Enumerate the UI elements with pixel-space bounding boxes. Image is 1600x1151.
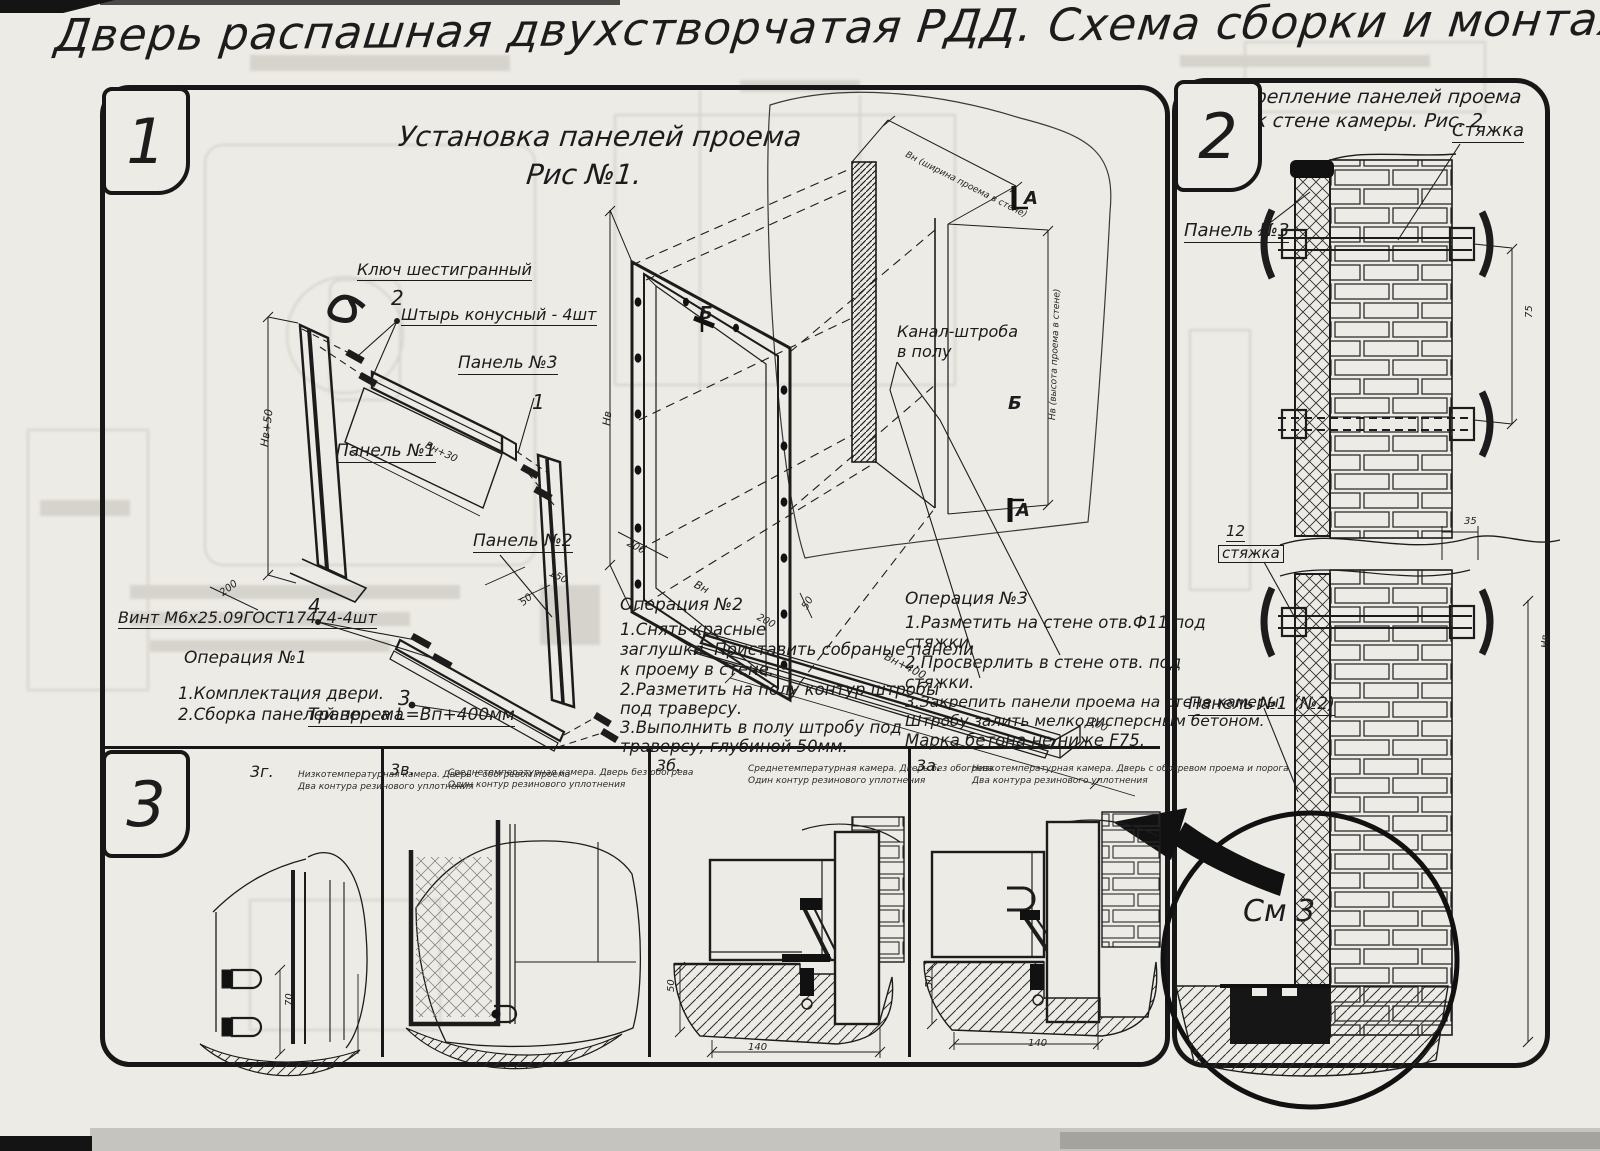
cell-divider-2	[648, 749, 651, 1057]
cell-divider-3	[908, 749, 911, 1057]
cell-3a-label: 3а.	[916, 758, 941, 775]
scan-smudge-bottom-right	[1060, 1132, 1600, 1149]
scan-mark-bottom-left	[0, 1136, 92, 1151]
cell-3v-drawing	[386, 812, 642, 1088]
figure3-badge-number: 3	[126, 768, 165, 841]
fig1-frame-drawing	[590, 90, 1190, 760]
fig2-title-line2: к стене камеры. Рис. 2	[1254, 112, 1483, 132]
figure2-badge: 2	[1174, 80, 1262, 192]
cell-3g-drawing	[188, 812, 380, 1080]
figure2-badge-number: 2	[1198, 100, 1237, 173]
cell-3a-caption-1: Низкотемпературная камера. Дверь с обогр…	[972, 764, 1289, 775]
fig2-title-line1: Крепление панелей проема	[1240, 88, 1522, 108]
cell-divider-1	[381, 749, 384, 1057]
cell-3a-drawing	[912, 812, 1162, 1084]
figure3-badge: 3	[102, 750, 190, 858]
cell-3v-caption-2: Один контур резинового уплотнения	[448, 780, 625, 791]
cell-3b-label: 3б.	[656, 758, 681, 775]
scanned-drawing-sheet: { "title": "Дверь распашная двухстворчат…	[0, 0, 1600, 1151]
figure1-badge: 1	[102, 87, 190, 195]
cell-3a-caption-2: Два контура резинового уплотнения	[972, 776, 1148, 787]
cell-3b-caption-1: Среднетемпературная камера. Дверь без об…	[748, 764, 993, 775]
cell-3b-caption-2: Один контур резинового уплотнения	[748, 776, 925, 787]
cell-3v-label: 3в.	[390, 762, 415, 779]
figure1-badge-number: 1	[126, 105, 165, 178]
cell-3g-label: 3г.	[250, 764, 274, 781]
fig2-wall-section-drawing	[1160, 130, 1600, 1090]
cell-3b-drawing	[652, 812, 906, 1094]
